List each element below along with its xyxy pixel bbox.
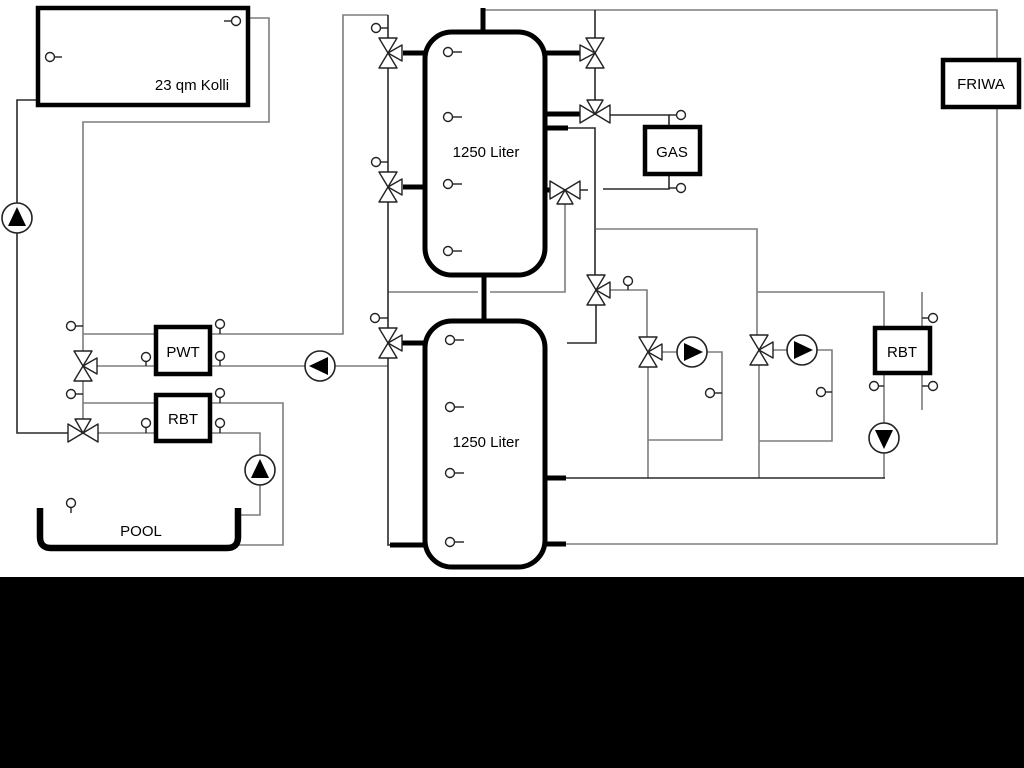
- gas-label: GAS: [656, 144, 688, 161]
- collector-label: 23 qm Kolli: [155, 77, 229, 94]
- gas-boiler-box: GAS: [645, 127, 700, 174]
- heating-circuit-2-pump-icon: [787, 335, 817, 365]
- rbt-circulation-pump-icon: [869, 423, 899, 453]
- rbt-right-label: RBT: [887, 344, 917, 361]
- pwt-charge-pump-icon: [305, 351, 335, 381]
- rbt-left-label: RBT: [168, 411, 198, 428]
- friwa-label: FRIWA: [957, 76, 1005, 93]
- bottom-black-band: [0, 577, 1024, 768]
- upper-tank-label: 1250 Liter: [453, 144, 520, 161]
- rbt-right-box: RBT: [875, 328, 930, 373]
- pool-pump-icon: [245, 455, 275, 485]
- rbt-left-box: RBT: [156, 395, 210, 441]
- heating-circuit-1-pump-icon: [677, 337, 707, 367]
- collector-pump-icon: [2, 203, 32, 233]
- upper-buffer-tank: 1250 Liter: [425, 32, 545, 275]
- hydraulic-schematic-diagram: 1250 Liter 1250 Liter 23 qm Kolli FRIWA …: [0, 0, 1024, 768]
- schematic-page: 1250 Liter 1250 Liter 23 qm Kolli FRIWA …: [0, 0, 1024, 768]
- solar-collector-box: 23 qm Kolli: [38, 8, 248, 105]
- pool-label: POOL: [120, 523, 162, 540]
- pwt-heat-exchanger-box: PWT: [156, 327, 210, 374]
- lower-tank-label: 1250 Liter: [453, 434, 520, 451]
- pwt-label: PWT: [166, 344, 199, 361]
- friwa-station-box: FRIWA: [943, 60, 1019, 107]
- lower-buffer-tank: 1250 Liter: [425, 321, 545, 567]
